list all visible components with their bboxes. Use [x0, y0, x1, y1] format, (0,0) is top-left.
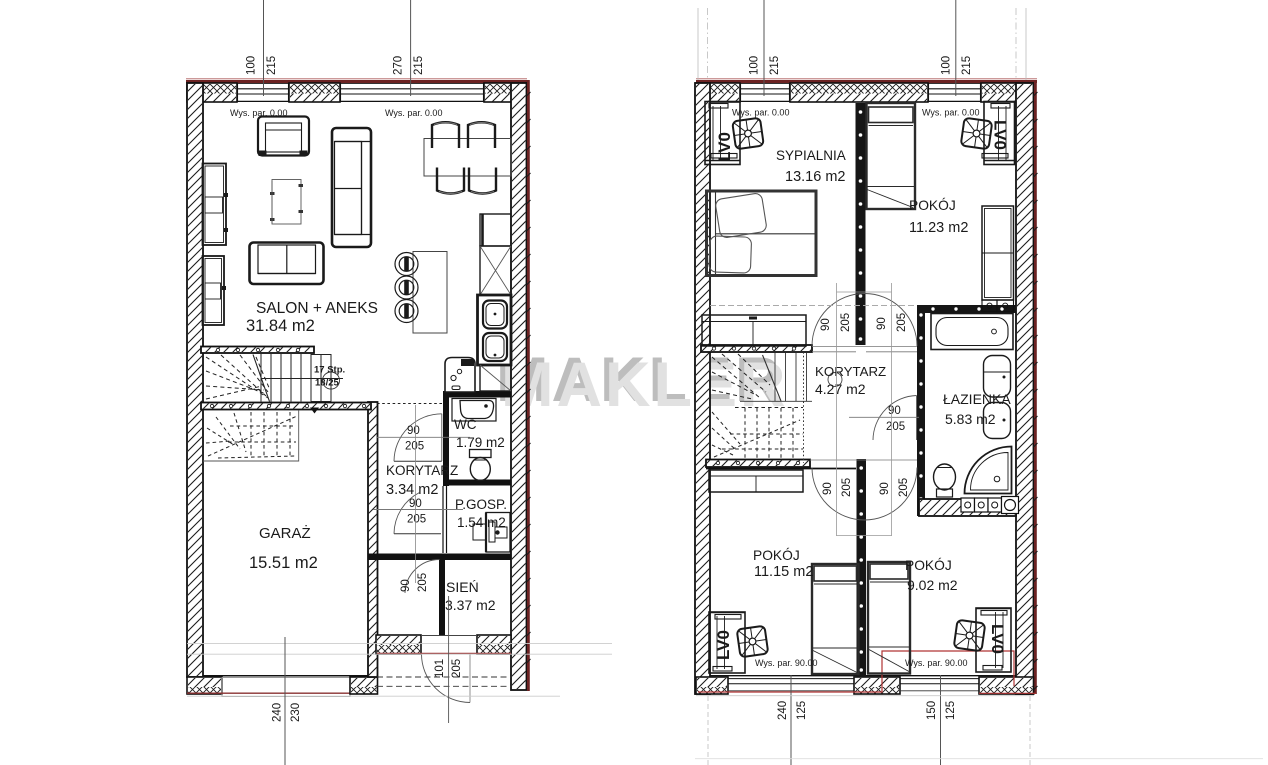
svg-text:KORYTARZ: KORYTARZ: [815, 364, 886, 379]
svg-text:90: 90: [820, 318, 832, 331]
svg-text:205: 205: [417, 573, 429, 592]
svg-text:215: 215: [413, 56, 425, 75]
svg-text:Wys. par. 0.00: Wys. par. 0.00: [732, 108, 789, 118]
svg-text:4.27 m2: 4.27 m2: [815, 381, 866, 397]
svg-text:90: 90: [822, 482, 834, 495]
svg-text:9.02 m2: 9.02 m2: [907, 577, 958, 593]
svg-text:205: 205: [898, 478, 910, 497]
svg-text:205: 205: [841, 478, 853, 497]
svg-text:150: 150: [926, 701, 938, 720]
svg-text:11.23 m2: 11.23 m2: [909, 220, 968, 236]
svg-text:240: 240: [777, 701, 789, 720]
svg-text:1.54 m2: 1.54 m2: [457, 515, 506, 530]
svg-text:205: 205: [886, 421, 905, 433]
svg-text:90: 90: [876, 317, 888, 330]
svg-text:Wys. par. 0.00: Wys. par. 0.00: [385, 108, 442, 118]
svg-text:POKÓJ: POKÓJ: [905, 557, 952, 573]
svg-text:90: 90: [888, 405, 901, 417]
svg-text:100: 100: [749, 56, 761, 75]
svg-text:LV0: LV0: [715, 132, 734, 162]
svg-text:31.84 m2: 31.84 m2: [246, 317, 315, 335]
svg-text:90: 90: [879, 482, 891, 495]
svg-text:Wys. par. 90.00: Wys. par. 90.00: [755, 658, 817, 668]
svg-text:215: 215: [961, 56, 973, 75]
svg-text:205: 205: [896, 313, 908, 332]
svg-text:205: 205: [407, 514, 426, 526]
svg-text:LV0: LV0: [988, 624, 1007, 654]
svg-text:270: 270: [393, 56, 405, 75]
svg-text:SALON + ANEKS: SALON + ANEKS: [256, 300, 378, 317]
svg-text:100: 100: [941, 56, 953, 75]
svg-text:240: 240: [272, 703, 284, 722]
svg-text:205: 205: [451, 659, 463, 678]
svg-text:100: 100: [246, 56, 258, 75]
svg-text:215: 215: [769, 56, 781, 75]
svg-text:13.16 m2: 13.16 m2: [785, 169, 845, 185]
svg-text:101: 101: [434, 659, 446, 678]
svg-text:SIEŃ: SIEŃ: [446, 579, 479, 595]
svg-text:230: 230: [290, 703, 302, 722]
svg-text:LV0: LV0: [714, 630, 733, 660]
svg-text:SYPIALNIA: SYPIALNIA: [776, 148, 846, 163]
svg-text:GARAŻ: GARAŻ: [259, 524, 311, 542]
svg-text:5.83 m2: 5.83 m2: [945, 411, 996, 427]
svg-text:125: 125: [945, 701, 957, 720]
svg-text:205: 205: [405, 441, 424, 453]
svg-text:3.34 m2: 3.34 m2: [386, 482, 438, 498]
svg-text:11.15 m2: 11.15 m2: [754, 564, 813, 580]
svg-text:3.37 m2: 3.37 m2: [445, 597, 496, 613]
svg-text:125: 125: [796, 701, 808, 720]
svg-text:POKÓJ: POKÓJ: [909, 197, 956, 213]
svg-text:WC: WC: [454, 417, 477, 432]
svg-text:KORYTARZ: KORYTARZ: [386, 463, 458, 478]
svg-text:18/25: 18/25: [315, 378, 339, 389]
svg-text:205: 205: [840, 313, 852, 332]
svg-text:POKÓJ: POKÓJ: [753, 547, 800, 563]
svg-text:215: 215: [266, 56, 278, 75]
svg-text:ŁAZIENKA: ŁAZIENKA: [943, 391, 1011, 407]
svg-text:90: 90: [400, 579, 412, 592]
svg-text:17 Stp.: 17 Stp.: [314, 365, 345, 376]
svg-text:Wys. par. 90.00: Wys. par. 90.00: [905, 658, 967, 668]
svg-text:LV0: LV0: [991, 120, 1010, 150]
svg-text:Wys. par. 0.00: Wys. par. 0.00: [922, 108, 979, 118]
svg-text:15.51 m2: 15.51 m2: [249, 554, 318, 572]
svg-text:90: 90: [407, 425, 420, 437]
